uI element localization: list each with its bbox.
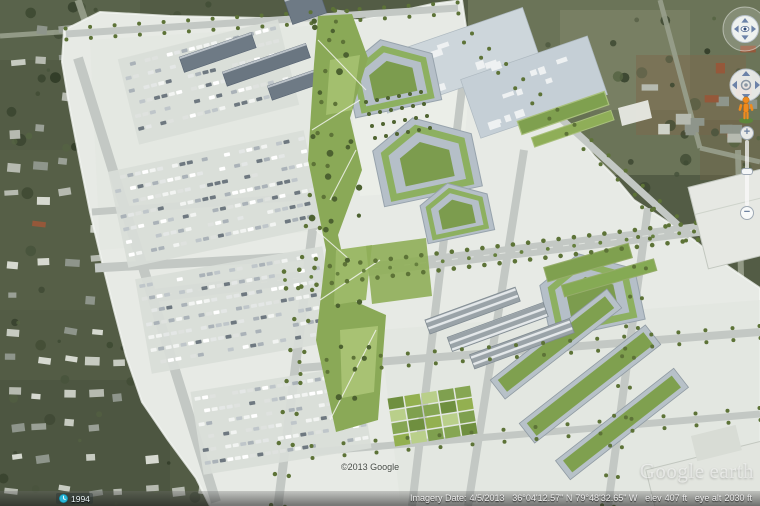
watermark-brand: Google — [640, 459, 705, 483]
eye-alt-value: 2030 ft — [724, 493, 752, 503]
coordinates: 36°04'12.57" N79°48'32.65" W — [512, 491, 640, 506]
imagery-date: Imagery Date:4/5/2013 — [410, 491, 508, 506]
navigation-controls: + − — [700, 0, 760, 240]
zoom-handle[interactable] — [741, 168, 753, 175]
oldest-imagery-year: 1994 — [71, 494, 90, 504]
google-earth-watermark: Googleearth — [640, 459, 754, 484]
google-earth-viewport: + − ©2013 Google Googleearth Imagery Dat… — [0, 0, 760, 506]
map-copyright: ©2013 Google — [341, 462, 399, 472]
eye-alt-label: eye alt — [695, 493, 722, 503]
longitude-value: 79°48'32.65" W — [575, 493, 637, 503]
look-joystick-icon — [722, 6, 760, 52]
zoom-out-button[interactable]: − — [740, 206, 754, 220]
status-bar: Imagery Date:4/5/2013 36°04'12.57" N79°4… — [0, 491, 760, 506]
elevation-value: 407 ft — [665, 493, 688, 503]
elevation: elev407 ft — [645, 491, 690, 506]
map-3d-view[interactable] — [0, 0, 760, 506]
eye-altitude: eye alt2030 ft — [695, 491, 755, 506]
elevation-label: elev — [645, 493, 662, 503]
pegman-icon — [736, 94, 756, 124]
imagery-date-label: Imagery Date: — [410, 493, 467, 503]
latitude-value: 36°04'12.57" N — [512, 493, 572, 503]
historical-imagery-indicator[interactable]: 1994 — [56, 493, 93, 504]
zoom-slider: + − — [739, 126, 755, 220]
watermark-product: earth — [710, 459, 754, 483]
clock-icon — [59, 494, 68, 503]
look-joystick[interactable] — [722, 6, 760, 52]
pegman-street-view[interactable] — [736, 94, 756, 124]
status-readouts: Imagery Date:4/5/2013 36°04'12.57" N79°4… — [410, 491, 755, 506]
imagery-date-value: 4/5/2013 — [470, 493, 505, 503]
zoom-in-button[interactable]: + — [740, 126, 754, 140]
